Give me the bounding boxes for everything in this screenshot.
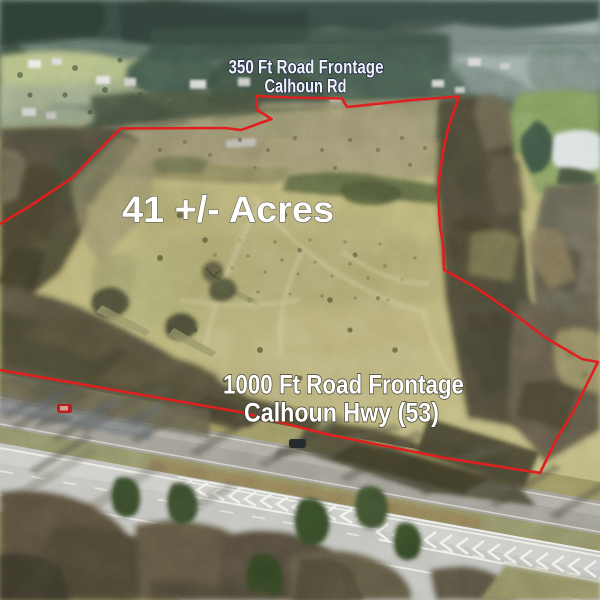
svg-text:350 Ft Road Frontage: 350 Ft Road Frontage bbox=[229, 58, 384, 79]
svg-text:Calhoun Hwy (53): Calhoun Hwy (53) bbox=[244, 398, 439, 428]
svg-text:41 +/- Acres: 41 +/- Acres bbox=[122, 188, 334, 230]
svg-text:Calhoun Rd: Calhoun Rd bbox=[265, 77, 347, 98]
svg-text:1000 Ft Road Frontage: 1000 Ft Road Frontage bbox=[223, 370, 464, 400]
